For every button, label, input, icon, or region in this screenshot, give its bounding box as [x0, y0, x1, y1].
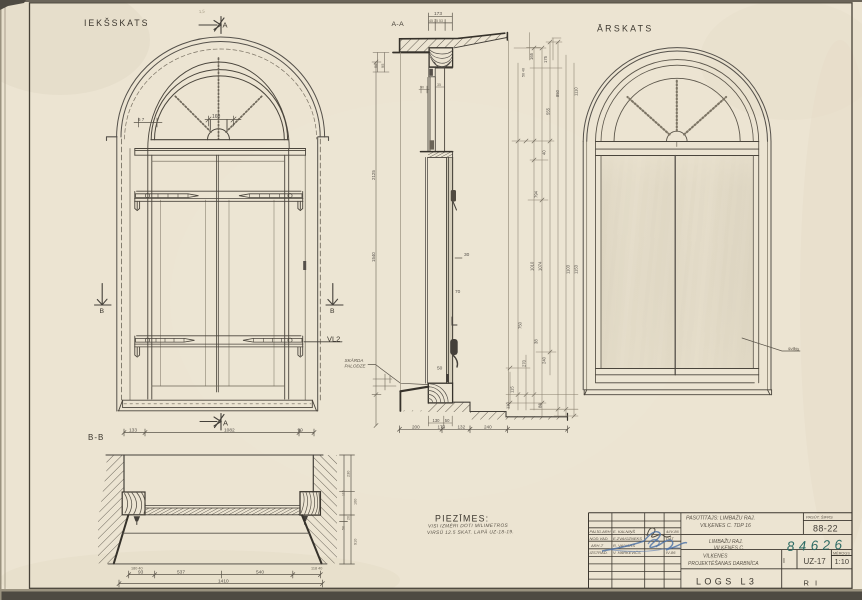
- svg-text:230: 230: [347, 471, 351, 477]
- svg-text:PALODZE: PALODZE: [345, 364, 367, 369]
- svg-text:50 40: 50 40: [522, 68, 526, 77]
- svg-text:173: 173: [438, 424, 446, 429]
- svg-text:IV-86: IV-86: [666, 550, 676, 555]
- svg-text:50: 50: [342, 526, 346, 530]
- svg-text:VILĶENES C. TDP 16: VILĶENES C. TDP 16: [700, 523, 751, 529]
- svg-text:110: 110: [506, 402, 511, 409]
- svg-text:115: 115: [342, 490, 346, 496]
- svg-text:2125: 2125: [371, 170, 376, 180]
- svg-text:A: A: [223, 419, 228, 428]
- svg-text:I: I: [783, 558, 785, 565]
- svg-text:130: 130: [433, 418, 441, 423]
- svg-text:115: 115: [510, 386, 515, 393]
- svg-text:4/IV-86: 4/IV-86: [666, 529, 680, 534]
- svg-text:B-B: B-B: [88, 433, 104, 442]
- svg-text:1110: 1110: [574, 87, 579, 96]
- svg-text:160: 160: [212, 114, 221, 120]
- svg-text:173: 173: [434, 11, 442, 17]
- svg-text:1103: 1103: [566, 264, 571, 274]
- svg-text:90: 90: [298, 428, 304, 434]
- svg-text:ĀRSKATS: ĀRSKATS: [597, 24, 654, 34]
- svg-text:95: 95: [380, 63, 385, 68]
- svg-text:133: 133: [129, 428, 137, 434]
- svg-text:240: 240: [484, 424, 492, 429]
- svg-text:50: 50: [437, 366, 443, 372]
- svg-text:70: 70: [455, 289, 461, 295]
- svg-text:90: 90: [420, 85, 424, 89]
- svg-text:PASŪTĪTĀJS: LIMBAŽU RAJ.: PASŪTĪTĀJS: LIMBAŽU RAJ.: [686, 514, 755, 522]
- svg-text:1540: 1540: [371, 252, 376, 262]
- svg-text:175: 175: [543, 55, 548, 63]
- svg-text:E.ZVAIGZNEKS: E.ZVAIGZNEKS: [613, 536, 642, 541]
- svg-text:1:10: 1:10: [835, 557, 850, 566]
- svg-text:88-22: 88-22: [813, 524, 838, 534]
- svg-text:B: B: [100, 308, 105, 315]
- svg-text:165: 165: [529, 52, 534, 60]
- svg-text:PASŪT. ŠIFRS: PASŪT. ŠIFRS: [806, 515, 833, 520]
- svg-text:1010: 1010: [530, 261, 535, 271]
- svg-text:LOGS L3: LOGS L3: [696, 577, 757, 587]
- svg-text:180 40: 180 40: [131, 567, 143, 571]
- svg-text:MĒROGS: MĒROGS: [833, 552, 850, 556]
- svg-text:A-A: A-A: [392, 21, 405, 28]
- svg-text:132: 132: [458, 424, 466, 429]
- svg-text:NOD.VAD.: NOD.VAD.: [590, 536, 609, 541]
- svg-text:1074: 1074: [538, 261, 543, 271]
- svg-text:35: 35: [437, 83, 441, 87]
- svg-text:A: A: [223, 21, 228, 30]
- svg-text:850: 850: [555, 89, 560, 97]
- svg-text:VILĶENES: VILĶENES: [703, 554, 728, 560]
- svg-text:IEKŠSKATS: IEKŠSKATS: [84, 18, 149, 28]
- svg-text:540: 540: [256, 570, 264, 576]
- svg-text:100: 100: [354, 499, 358, 505]
- svg-text:UZ-17: UZ-17: [804, 557, 827, 566]
- svg-text:R I: R I: [804, 579, 820, 588]
- svg-text:1410: 1410: [218, 579, 229, 585]
- svg-text:50: 50: [445, 418, 450, 423]
- svg-text:PIEZĪMES:: PIEZĪMES:: [435, 514, 489, 524]
- svg-text:58: 58: [373, 63, 378, 68]
- svg-text:PROJEKTĒŠANAS DARBNĪCA: PROJEKTĒŠANAS DARBNĪCA: [688, 560, 759, 567]
- svg-text:240: 240: [542, 356, 547, 364]
- svg-text:555: 555: [546, 107, 551, 115]
- svg-text:88: 88: [538, 403, 543, 408]
- svg-text:ARH-T: ARH-T: [590, 543, 604, 548]
- svg-text:794: 794: [534, 190, 539, 198]
- svg-text:1082: 1082: [224, 428, 235, 434]
- svg-text:20: 20: [347, 516, 351, 520]
- svg-text:93: 93: [138, 570, 144, 576]
- svg-text:910: 910: [354, 539, 358, 545]
- svg-text:B: B: [330, 308, 335, 315]
- svg-text:svīķis: svīķis: [788, 346, 800, 352]
- svg-text:LIMBAŽU RAJ.: LIMBAŽU RAJ.: [709, 537, 743, 545]
- svg-text:SKĀRDA: SKĀRDA: [345, 357, 364, 363]
- svg-text:200: 200: [412, 424, 420, 429]
- svg-text:1,5: 1,5: [199, 9, 206, 14]
- svg-text:PALĪG.ARH: PALĪG.ARH: [590, 529, 611, 534]
- svg-text:1153: 1153: [574, 264, 579, 274]
- svg-text:537: 537: [177, 570, 185, 576]
- svg-text:VILĶENES C.: VILĶENES C.: [714, 546, 745, 552]
- svg-text:270: 270: [522, 359, 527, 367]
- svg-text:45 75 53: 45 75 53: [429, 19, 443, 23]
- svg-text:118 40: 118 40: [311, 567, 322, 571]
- svg-text:E. KALNIŅŠ: E. KALNIŅŠ: [613, 529, 635, 534]
- svg-text:6 7: 6 7: [138, 117, 145, 122]
- svg-text:38: 38: [534, 339, 539, 344]
- svg-text:40: 40: [542, 150, 547, 155]
- svg-text:750: 750: [518, 321, 523, 329]
- svg-text:30: 30: [464, 252, 470, 258]
